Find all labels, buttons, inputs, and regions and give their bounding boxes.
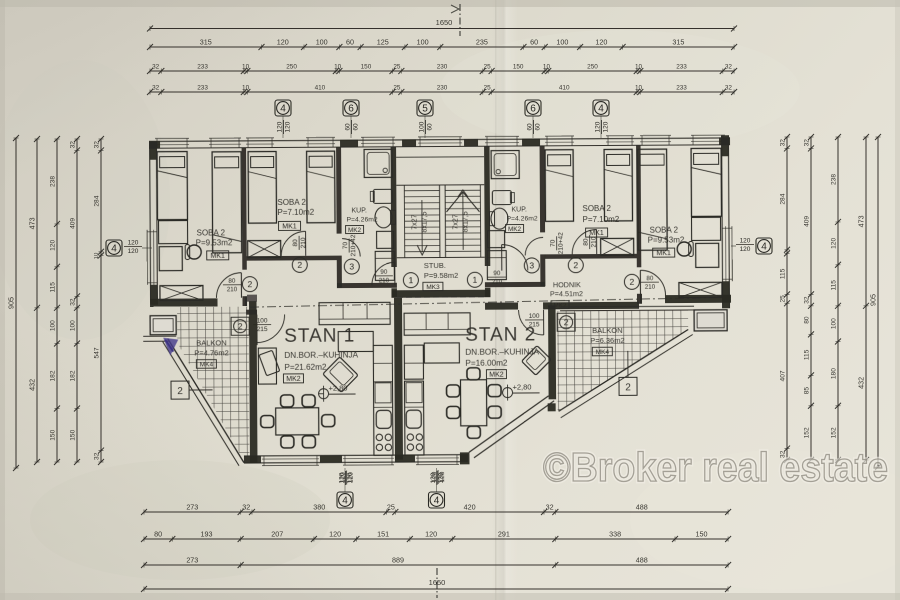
svg-text:MK2: MK2 xyxy=(489,372,504,379)
svg-text:P=7.10m2: P=7.10m2 xyxy=(582,215,619,224)
svg-text:2: 2 xyxy=(297,260,302,270)
svg-text:60: 60 xyxy=(427,123,434,131)
svg-text:25: 25 xyxy=(393,64,401,71)
svg-text:115: 115 xyxy=(50,282,57,293)
svg-text:25: 25 xyxy=(393,85,401,92)
svg-text:210: 210 xyxy=(645,283,656,290)
svg-text:210: 210 xyxy=(227,286,238,293)
svg-text:32: 32 xyxy=(546,503,554,512)
svg-text:233: 233 xyxy=(197,64,208,71)
svg-text:MK1: MK1 xyxy=(211,253,226,260)
svg-text:284: 284 xyxy=(94,195,101,206)
svg-text:120: 120 xyxy=(425,530,437,539)
svg-text:210+42: 210+42 xyxy=(350,234,357,256)
svg-text:10: 10 xyxy=(635,85,643,92)
svg-text:120: 120 xyxy=(431,471,438,482)
svg-text:90: 90 xyxy=(493,270,500,277)
svg-text:100: 100 xyxy=(419,121,426,132)
svg-text:235: 235 xyxy=(476,38,488,47)
svg-text:6: 6 xyxy=(348,103,354,114)
svg-text:©Broker real estate: ©Broker real estate xyxy=(543,444,888,490)
svg-text:P=4.51m2: P=4.51m2 xyxy=(550,289,583,298)
svg-text:KUP.: KUP. xyxy=(351,207,367,214)
svg-text:120: 120 xyxy=(340,472,347,483)
svg-text:32: 32 xyxy=(780,139,787,147)
svg-text:100: 100 xyxy=(831,318,838,329)
svg-text:100: 100 xyxy=(556,38,568,47)
svg-text:32: 32 xyxy=(804,296,811,304)
svg-text:2: 2 xyxy=(625,382,631,393)
svg-text:120: 120 xyxy=(50,240,57,251)
svg-text:32: 32 xyxy=(804,139,811,147)
svg-text:115: 115 xyxy=(780,268,787,279)
svg-text:409: 409 xyxy=(70,218,77,229)
svg-text:905: 905 xyxy=(869,294,878,306)
svg-text:115: 115 xyxy=(804,349,811,360)
svg-text:889: 889 xyxy=(392,556,404,565)
svg-text:409: 409 xyxy=(804,216,811,227)
svg-text:273: 273 xyxy=(186,503,198,512)
svg-text:STUB.: STUB. xyxy=(424,261,446,270)
svg-text:151: 151 xyxy=(377,530,389,539)
svg-text:230: 230 xyxy=(437,85,448,92)
svg-text:60: 60 xyxy=(527,123,534,131)
svg-text:380: 380 xyxy=(313,503,325,512)
svg-text:10: 10 xyxy=(242,85,250,92)
svg-text:85: 85 xyxy=(804,387,811,395)
svg-text:32: 32 xyxy=(70,141,77,149)
svg-text:120: 120 xyxy=(128,240,139,247)
svg-text:120: 120 xyxy=(595,121,602,132)
svg-text:182: 182 xyxy=(50,370,57,381)
svg-text:315: 315 xyxy=(672,38,684,47)
svg-text:120: 120 xyxy=(277,38,289,47)
svg-text:MK1: MK1 xyxy=(282,223,297,230)
svg-text:473: 473 xyxy=(857,215,866,227)
svg-text:MK2: MK2 xyxy=(286,376,301,383)
svg-text:120: 120 xyxy=(595,38,607,47)
svg-text:120: 120 xyxy=(831,238,838,249)
svg-text:P=9.53m2: P=9.53m2 xyxy=(196,238,233,247)
svg-text:207: 207 xyxy=(271,530,283,539)
svg-text:P=4.76m2: P=4.76m2 xyxy=(194,348,228,357)
svg-text:338: 338 xyxy=(609,530,621,539)
svg-text:182: 182 xyxy=(70,370,77,381)
svg-text:60: 60 xyxy=(346,38,354,47)
svg-text:120: 120 xyxy=(329,530,341,539)
svg-text:32: 32 xyxy=(725,64,733,71)
svg-text:32: 32 xyxy=(94,452,101,460)
svg-text:410: 410 xyxy=(559,85,570,92)
svg-text:210: 210 xyxy=(591,236,598,247)
svg-text:2: 2 xyxy=(177,386,183,397)
svg-text:4: 4 xyxy=(342,495,348,506)
svg-text:70: 70 xyxy=(342,242,349,250)
svg-text:P=9.53m2: P=9.53m2 xyxy=(648,236,685,245)
svg-text:60: 60 xyxy=(535,123,542,131)
svg-text:25: 25 xyxy=(780,295,787,303)
svg-text:1650: 1650 xyxy=(436,18,453,27)
svg-text:150: 150 xyxy=(50,429,57,440)
svg-text:10: 10 xyxy=(242,64,250,71)
svg-text:547: 547 xyxy=(94,347,101,358)
svg-text:32: 32 xyxy=(70,298,77,306)
svg-text:4: 4 xyxy=(434,495,440,506)
svg-text:120: 120 xyxy=(128,248,139,255)
svg-text:MK4: MK4 xyxy=(200,361,214,368)
svg-text:1: 1 xyxy=(472,275,477,285)
svg-text:SOBA 2: SOBA 2 xyxy=(197,228,226,237)
svg-text:210+42: 210+42 xyxy=(558,232,565,254)
svg-text:210: 210 xyxy=(300,237,307,248)
svg-text:BALKON: BALKON xyxy=(196,338,226,347)
svg-text:80: 80 xyxy=(228,278,235,285)
svg-text:90: 90 xyxy=(380,269,387,276)
svg-text:3: 3 xyxy=(349,262,354,272)
svg-text:100: 100 xyxy=(50,320,57,331)
svg-text:410: 410 xyxy=(315,85,326,92)
svg-text:120: 120 xyxy=(348,472,355,483)
svg-text:432: 432 xyxy=(857,377,866,389)
svg-text:100: 100 xyxy=(316,38,328,47)
svg-text:32: 32 xyxy=(152,64,160,71)
svg-text:25: 25 xyxy=(484,64,492,71)
svg-text:80: 80 xyxy=(154,530,162,539)
svg-text:8x17,5: 8x17,5 xyxy=(462,211,469,232)
svg-text:180: 180 xyxy=(831,368,838,379)
svg-text:488: 488 xyxy=(636,556,648,565)
svg-text:233: 233 xyxy=(676,64,687,71)
svg-text:4: 4 xyxy=(761,241,767,252)
svg-text:P=7.10m2: P=7.10m2 xyxy=(277,208,314,217)
svg-text:120: 120 xyxy=(740,246,751,253)
svg-text:BALKON: BALKON xyxy=(592,326,622,335)
svg-text:KUP.: KUP. xyxy=(511,206,527,213)
svg-text:10: 10 xyxy=(94,252,100,259)
svg-text:80: 80 xyxy=(583,238,590,246)
svg-text:150: 150 xyxy=(696,530,708,539)
svg-text:70: 70 xyxy=(550,239,557,247)
svg-text:4: 4 xyxy=(111,243,117,254)
svg-text:152: 152 xyxy=(831,427,838,438)
svg-text:25: 25 xyxy=(387,503,395,512)
svg-text:120: 120 xyxy=(277,121,284,132)
svg-text:DN.BOR.–KUHINJA: DN.BOR.–KUHINJA xyxy=(465,347,539,356)
svg-text:233: 233 xyxy=(197,85,208,92)
svg-text:80: 80 xyxy=(292,239,299,247)
svg-text:905: 905 xyxy=(7,297,16,309)
svg-text:7x27: 7x27 xyxy=(411,214,418,229)
svg-text:432: 432 xyxy=(28,379,37,391)
svg-text:SOBA 2: SOBA 2 xyxy=(277,198,306,207)
svg-text:4: 4 xyxy=(598,103,604,114)
svg-text:115: 115 xyxy=(831,280,838,291)
svg-text:4: 4 xyxy=(280,103,286,114)
svg-text:407: 407 xyxy=(780,370,787,381)
svg-text:120: 120 xyxy=(603,121,610,132)
svg-text:2: 2 xyxy=(248,279,253,289)
svg-text:3: 3 xyxy=(529,260,534,270)
svg-text:250: 250 xyxy=(286,64,297,71)
svg-text:193: 193 xyxy=(200,530,212,539)
svg-text:120: 120 xyxy=(439,471,446,482)
svg-text:32: 32 xyxy=(725,85,733,92)
svg-text:215: 215 xyxy=(257,326,268,333)
svg-text:MK2: MK2 xyxy=(554,302,567,309)
svg-text:238: 238 xyxy=(50,176,57,187)
svg-text:488: 488 xyxy=(636,503,648,512)
svg-text:MK1: MK1 xyxy=(656,250,671,257)
svg-text:60: 60 xyxy=(530,38,538,47)
svg-text:25: 25 xyxy=(484,85,492,92)
svg-text:MK2: MK2 xyxy=(508,226,521,233)
svg-text:233: 233 xyxy=(676,85,687,92)
svg-text:230: 230 xyxy=(437,64,448,71)
svg-text:150: 150 xyxy=(361,64,372,71)
svg-text:315: 315 xyxy=(200,38,212,47)
svg-text:+2,80: +2,80 xyxy=(513,382,532,391)
svg-text:2: 2 xyxy=(573,260,578,270)
svg-text:125: 125 xyxy=(377,38,389,47)
svg-text:32: 32 xyxy=(152,85,160,92)
svg-text:10: 10 xyxy=(543,64,551,71)
svg-text:P=4.26m2: P=4.26m2 xyxy=(506,215,537,222)
svg-text:7x27: 7x27 xyxy=(452,214,459,229)
svg-text:P=21.62m2: P=21.62m2 xyxy=(284,363,327,372)
svg-text:10: 10 xyxy=(334,64,342,71)
svg-text:120: 120 xyxy=(740,238,751,245)
svg-text:MK4: MK4 xyxy=(596,349,610,356)
svg-text:SOBA 2: SOBA 2 xyxy=(582,204,611,213)
svg-text:291: 291 xyxy=(498,530,510,539)
svg-text:P=16.00m2: P=16.00m2 xyxy=(465,359,508,368)
svg-text:STAN 2: STAN 2 xyxy=(465,324,536,345)
svg-text:MK2: MK2 xyxy=(348,227,361,234)
svg-text:238: 238 xyxy=(831,174,838,185)
svg-text:80: 80 xyxy=(804,316,811,324)
svg-text:420: 420 xyxy=(464,503,476,512)
svg-text:80: 80 xyxy=(646,275,653,282)
svg-text:6: 6 xyxy=(530,103,536,114)
svg-text:473: 473 xyxy=(28,217,37,229)
svg-text:P=6.36m2: P=6.36m2 xyxy=(590,336,624,345)
svg-text:P=4.26m2: P=4.26m2 xyxy=(346,216,377,223)
svg-text:5: 5 xyxy=(422,103,428,114)
svg-text:1: 1 xyxy=(408,275,413,285)
svg-text:273: 273 xyxy=(186,556,198,565)
svg-text:10: 10 xyxy=(635,64,643,71)
svg-text:+2,80: +2,80 xyxy=(329,384,348,393)
svg-text:150: 150 xyxy=(70,429,77,440)
svg-text:284: 284 xyxy=(780,193,787,204)
svg-text:100: 100 xyxy=(257,318,268,325)
svg-text:60: 60 xyxy=(353,123,360,131)
svg-text:P=9.58m2: P=9.58m2 xyxy=(424,271,458,280)
svg-text:32: 32 xyxy=(94,141,101,149)
svg-text:MK3: MK3 xyxy=(426,284,440,291)
svg-text:32: 32 xyxy=(242,503,250,512)
svg-text:100: 100 xyxy=(70,320,77,331)
svg-text:120: 120 xyxy=(285,121,292,132)
svg-text:8x17,5: 8x17,5 xyxy=(421,211,428,232)
svg-text:2: 2 xyxy=(629,277,634,287)
svg-text:HODNIK: HODNIK xyxy=(553,280,581,289)
svg-text:SOBA 2: SOBA 2 xyxy=(650,226,679,235)
svg-text:100: 100 xyxy=(529,313,540,320)
svg-text:60: 60 xyxy=(345,123,352,131)
svg-text:215: 215 xyxy=(529,321,540,328)
svg-text:100: 100 xyxy=(417,38,429,47)
svg-text:STAN 1: STAN 1 xyxy=(284,326,355,347)
svg-text:250: 250 xyxy=(587,64,598,71)
svg-text:150: 150 xyxy=(513,64,524,71)
svg-text:152: 152 xyxy=(804,427,811,438)
